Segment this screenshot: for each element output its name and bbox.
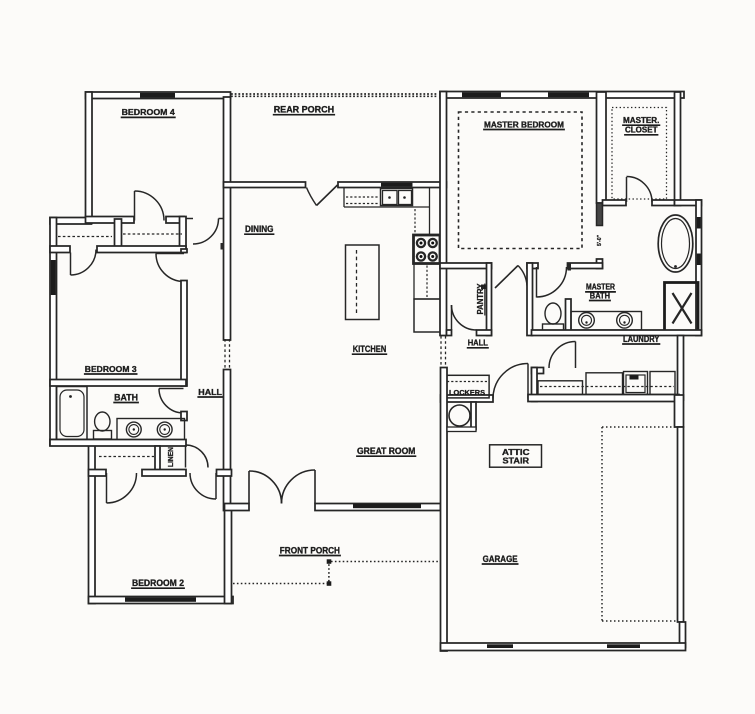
svg-text:DINING: DINING [245,224,274,234]
svg-text:LOCKERS: LOCKERS [449,388,485,397]
svg-text:STAIR: STAIR [503,457,530,466]
svg-text:KITCHEN: KITCHEN [353,344,387,354]
svg-text:BEDROOM 4: BEDROOM 4 [122,107,175,117]
svg-text:HALL: HALL [198,387,222,397]
svg-text:5'-0": 5'-0" [597,235,603,246]
svg-text:HALL: HALL [468,338,488,348]
svg-text:BEDROOM 3: BEDROOM 3 [85,364,137,374]
svg-text:MASTER BEDROOM: MASTER BEDROOM [484,119,564,129]
svg-text:GREAT ROOM: GREAT ROOM [357,446,415,456]
svg-text:LAUNDRY: LAUNDRY [623,334,660,344]
svg-text:MASTER.: MASTER. [623,116,659,125]
svg-text:CLOSET: CLOSET [625,126,658,135]
svg-text:REAR PORCH: REAR PORCH [274,105,335,115]
svg-text:PANTRY: PANTRY [476,283,485,315]
svg-text:GARAGE: GARAGE [483,554,518,564]
svg-text:ATTIC: ATTIC [502,448,530,457]
svg-text:LINEN: LINEN [168,447,175,467]
svg-text:FRONT PORCH: FRONT PORCH [280,545,340,555]
svg-text:BATH: BATH [114,392,138,402]
svg-text:BATH: BATH [590,291,610,300]
svg-text:BEDROOM 2: BEDROOM 2 [132,578,184,588]
